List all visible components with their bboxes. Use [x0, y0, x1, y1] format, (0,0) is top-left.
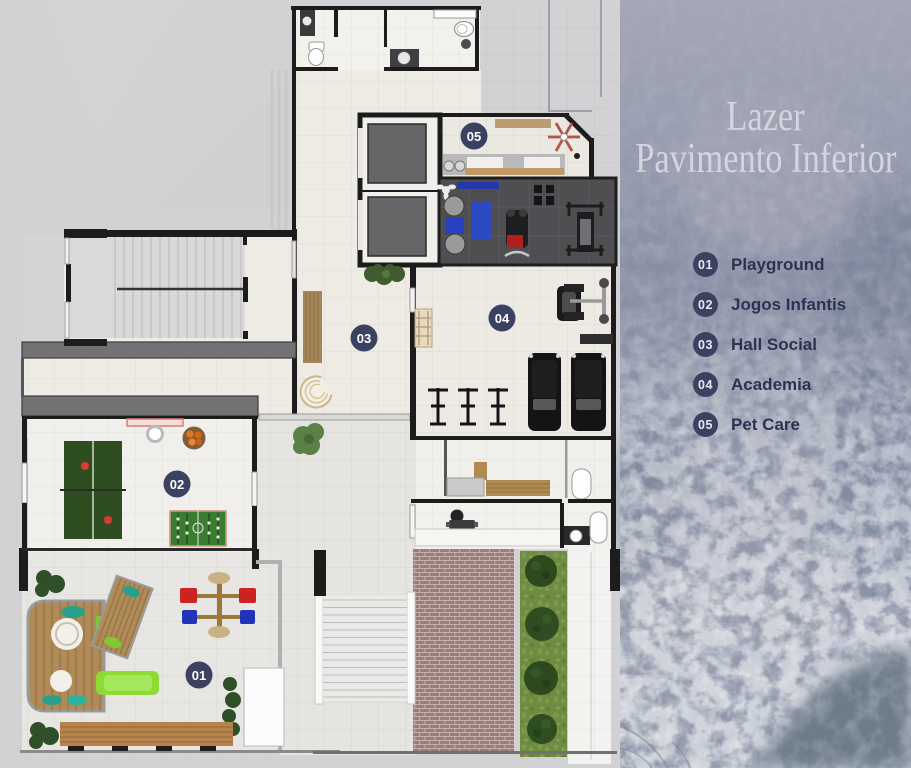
svg-text:04: 04: [495, 311, 510, 326]
svg-text:05: 05: [467, 129, 481, 144]
svg-text:02: 02: [170, 477, 184, 492]
svg-text:03: 03: [357, 331, 371, 346]
svg-text:01: 01: [192, 668, 206, 683]
